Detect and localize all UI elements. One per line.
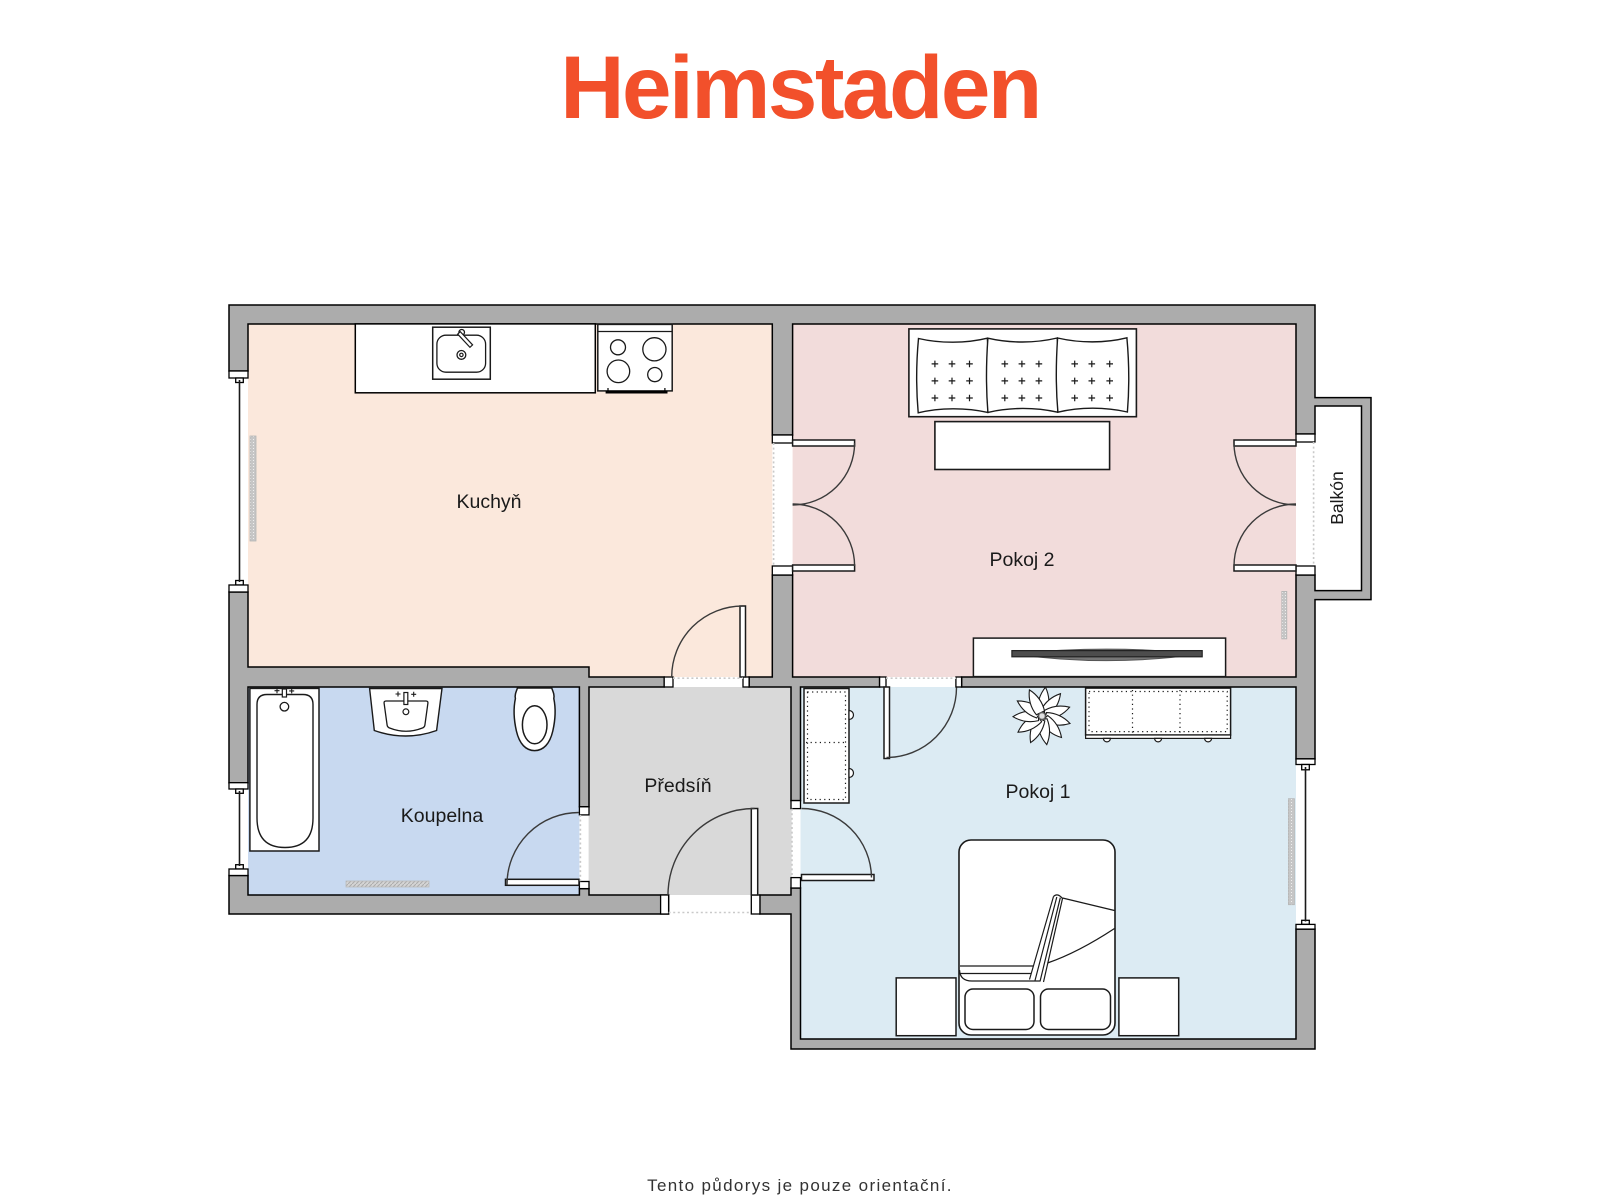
- svg-text:Heimstaden: Heimstaden: [560, 37, 1040, 137]
- svg-text:Předsíň: Předsíň: [644, 775, 711, 797]
- svg-text:Pokoj 2: Pokoj 2: [989, 549, 1054, 571]
- svg-text:Balkón: Balkón: [1327, 471, 1347, 525]
- svg-text:Kuchyň: Kuchyň: [456, 491, 521, 513]
- svg-text:Tento půdorys je pouze orienta: Tento půdorys je pouze orientační.: [647, 1176, 953, 1195]
- svg-text:Koupelna: Koupelna: [401, 805, 484, 827]
- svg-text:Pokoj 1: Pokoj 1: [1005, 781, 1070, 803]
